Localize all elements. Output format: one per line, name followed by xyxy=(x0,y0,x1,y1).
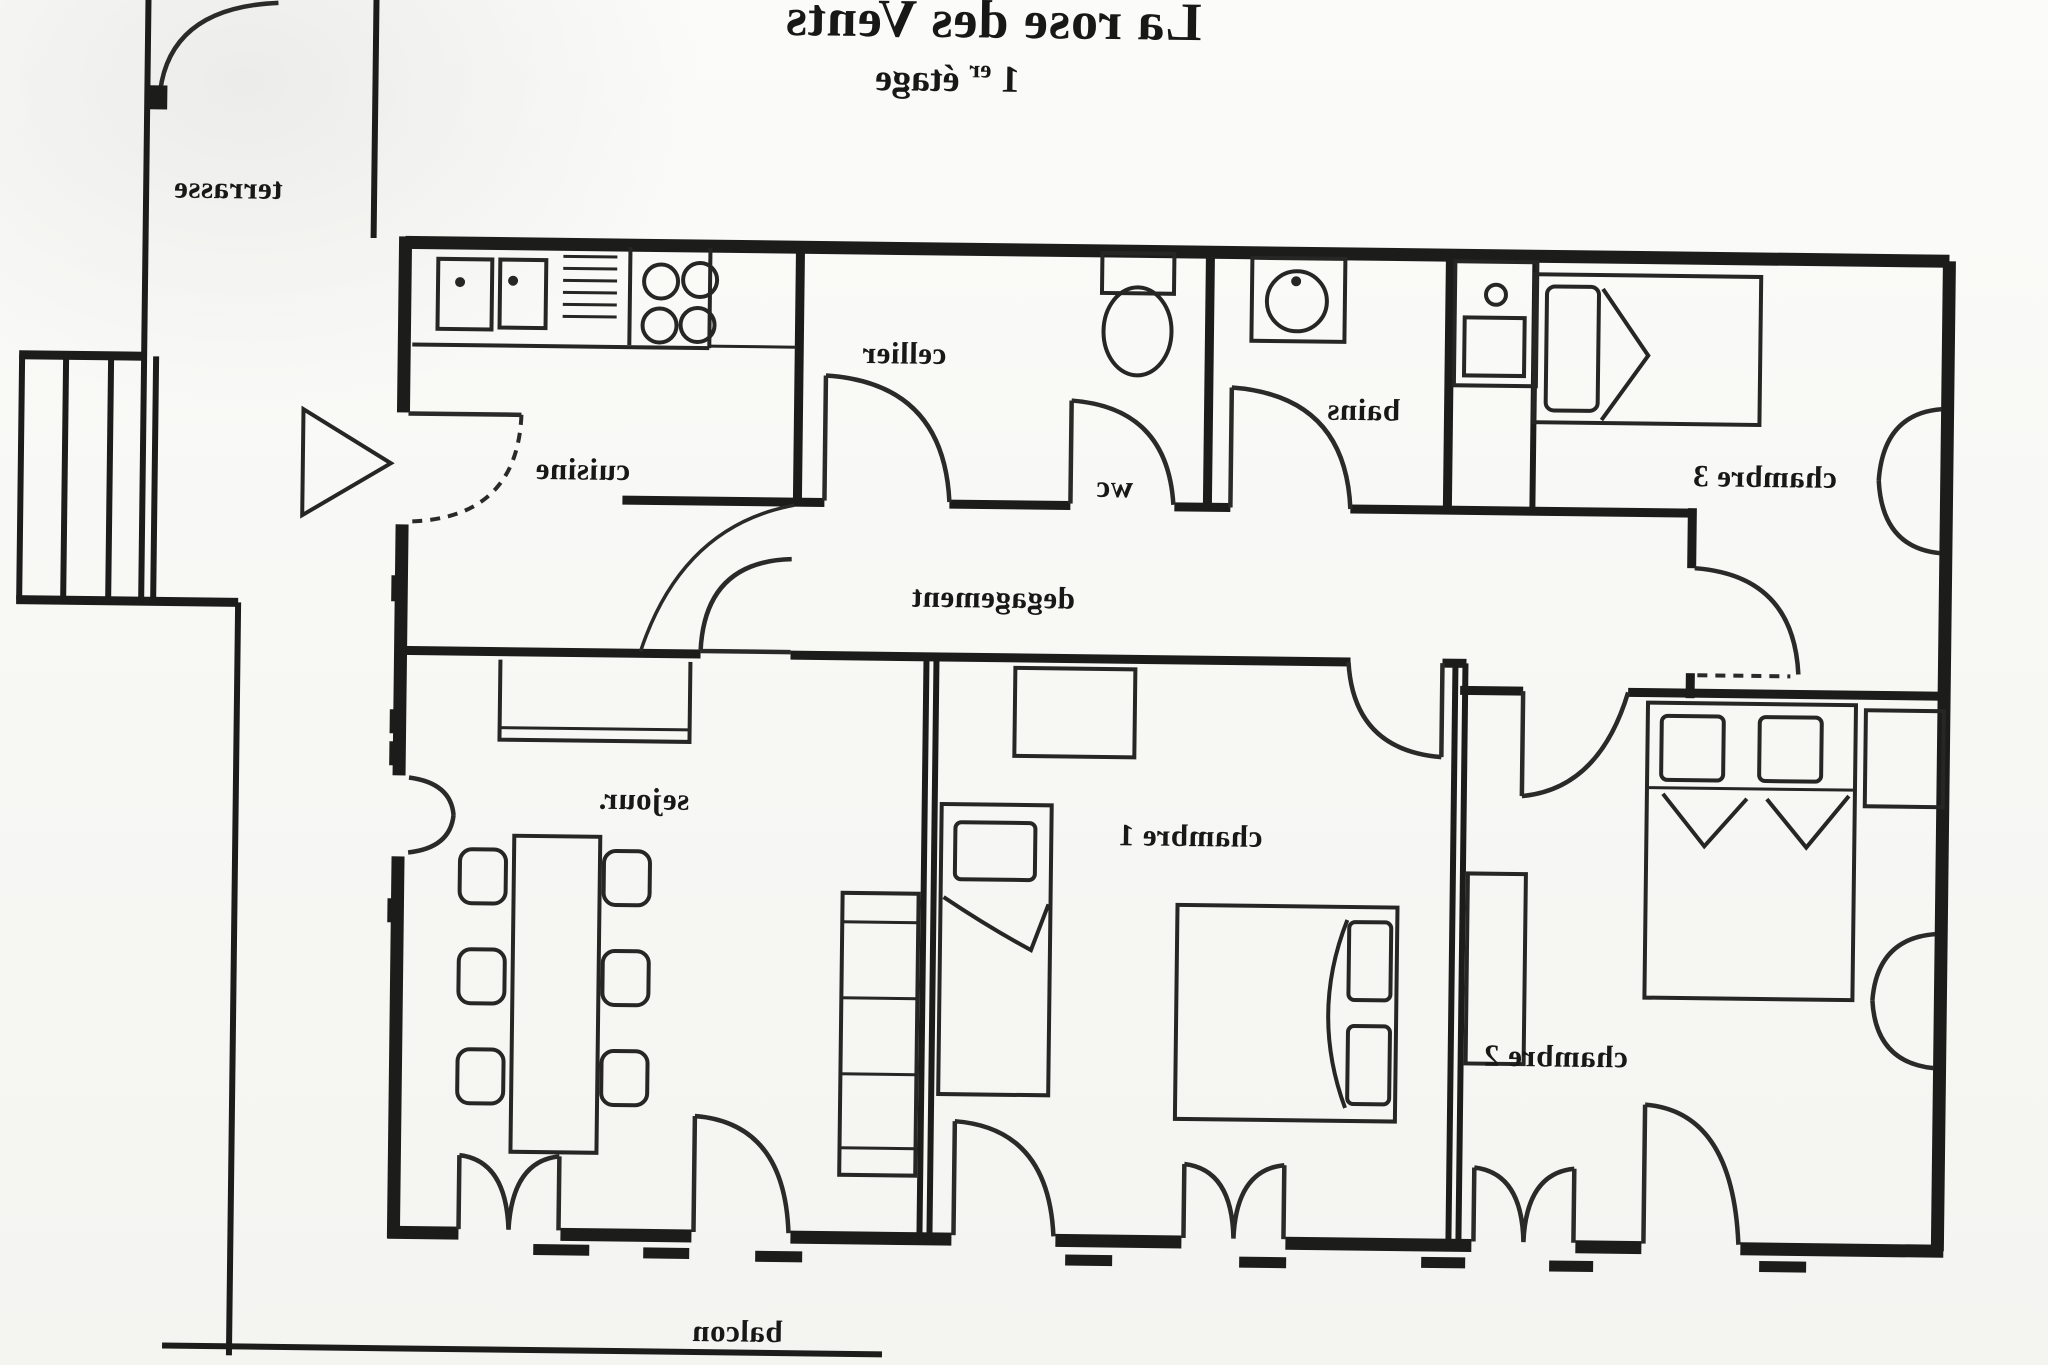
sheet-fold-double-bed xyxy=(1327,920,1347,1108)
bed-line-chambre2 xyxy=(1649,788,1853,790)
chair xyxy=(457,1049,504,1104)
door-chambre1 xyxy=(1347,662,1442,757)
subtitle-superscript: er xyxy=(969,56,992,83)
tick xyxy=(390,709,402,733)
wall-chambre3-step xyxy=(1690,508,1692,698)
bed-chambre3 xyxy=(1533,274,1761,425)
pillow-chambre2 xyxy=(1661,716,1724,781)
wall-sejour-chambre1 xyxy=(919,657,936,1239)
threshold-tick xyxy=(1759,1261,1806,1273)
sheet-fold-single-bed xyxy=(943,897,1049,950)
window-chambre2-right xyxy=(1872,933,1936,1068)
washbasin-tap xyxy=(1291,276,1301,286)
label-chambre2: chambre 2 xyxy=(1483,1038,1628,1075)
pillow-chambre3 xyxy=(1546,286,1600,411)
hob-burner xyxy=(683,263,717,297)
sofa-cushion-lines xyxy=(840,922,919,1149)
chair xyxy=(603,851,650,906)
label-balcon: balcon xyxy=(692,1313,783,1349)
dining-table xyxy=(510,836,600,1153)
furniture xyxy=(294,243,1949,1188)
chair xyxy=(458,949,505,1004)
labels: La rose des Vents 1 er étage terrasse cu… xyxy=(160,0,1843,1362)
pillow-chambre2 xyxy=(1759,717,1822,782)
label-wc: wc xyxy=(1096,469,1134,504)
sheet-fold-chambre3 xyxy=(1601,289,1649,421)
window-sejour-left xyxy=(408,777,454,853)
door-terrasse-arc xyxy=(159,1,278,102)
wall-cuisine-cellier xyxy=(797,247,800,502)
threshold-tick xyxy=(533,1244,589,1256)
page-subtitle: 1 er étage xyxy=(875,43,1020,101)
sheet-fold-chambre2 xyxy=(1662,794,1849,848)
double-bed-chambre2 xyxy=(1644,703,1856,1001)
doors-and-windows xyxy=(146,1,1947,1247)
label-bains: bains xyxy=(1327,392,1401,428)
walls xyxy=(7,0,1959,1365)
faucet-dot xyxy=(508,276,518,286)
label-chambre1: chambre 1 xyxy=(1118,817,1263,854)
wall-terrasse-left xyxy=(141,0,148,601)
stairs-frame xyxy=(16,355,241,603)
door-chambre3 xyxy=(1693,568,1799,674)
opening-cuisine-arch xyxy=(641,503,795,653)
door-cellier xyxy=(824,376,951,503)
washing-machine-drum xyxy=(1464,317,1525,376)
kitchen-drainer xyxy=(563,256,618,317)
tick xyxy=(391,575,403,601)
label-terrasse: terrasse xyxy=(173,170,282,206)
tick xyxy=(389,741,401,765)
tick xyxy=(1936,869,1948,895)
tick xyxy=(149,85,167,109)
tick xyxy=(1939,601,1951,627)
threshold-tick xyxy=(1549,1260,1593,1272)
buffet-shelf-line xyxy=(500,728,690,730)
door-chambre1-balcon xyxy=(953,1121,1054,1236)
window-chambre1 xyxy=(1183,1164,1284,1239)
window-chambre3-right xyxy=(1878,408,1942,553)
wall-terrasse-right xyxy=(374,0,377,238)
door-sejour-balcon xyxy=(693,1116,789,1233)
kitchen-sink-right xyxy=(500,260,547,329)
label-sejour: sejour. xyxy=(598,781,689,817)
sofa xyxy=(839,893,918,1176)
kitchen-counter-ext xyxy=(709,346,796,347)
hob-burner xyxy=(642,308,676,342)
door-entrance-leaf xyxy=(408,413,521,414)
toilet-bowl xyxy=(1103,287,1172,376)
wall-chambre2-north xyxy=(1460,690,1944,696)
label-cuisine: cuisine xyxy=(535,451,630,487)
wall-chambre1-chambre2 xyxy=(1448,663,1465,1245)
window-chambre2 xyxy=(1473,1168,1574,1243)
label-cellier: cellier xyxy=(862,335,947,371)
page-title: La rose des Vents xyxy=(785,0,1202,52)
label-chambre3: chambre 3 xyxy=(1692,458,1837,495)
pillow-single-bed xyxy=(955,822,1036,880)
subtitle-number: 1 xyxy=(1001,59,1021,101)
washing-machine-knob xyxy=(1486,285,1506,305)
wall-exterior-lower xyxy=(229,602,238,1355)
door-chambre2 xyxy=(1522,691,1628,797)
chair xyxy=(602,951,649,1006)
subtitle-rest: étage xyxy=(875,57,960,100)
tick xyxy=(1939,569,1951,595)
threshold-tick xyxy=(643,1247,689,1259)
closet-chambre2-wall xyxy=(1466,873,1526,1064)
label-degagement: degagement xyxy=(911,579,1075,616)
chair xyxy=(601,1051,648,1106)
window-sejour xyxy=(458,1155,559,1230)
wall-bains-chambre3 xyxy=(1447,255,1450,510)
dresser-chambre2 xyxy=(1865,710,1944,807)
tick xyxy=(387,898,399,922)
double-bed-chambre1 xyxy=(1175,905,1398,1122)
stairs-steps xyxy=(19,355,156,602)
door-chambre3-threshold xyxy=(1697,675,1790,676)
threshold-tick xyxy=(755,1251,802,1263)
wall-bottom xyxy=(387,1232,1943,1251)
chair xyxy=(459,849,506,904)
door-sejour xyxy=(701,558,792,652)
faucet-dot xyxy=(455,277,465,287)
wall-left xyxy=(393,236,405,1238)
wall-top xyxy=(406,242,1950,261)
direction-arrow xyxy=(302,409,391,516)
pillow-double-bed xyxy=(1347,1026,1390,1105)
floorplan-svg: La rose des Vents 1 er étage terrasse cu… xyxy=(0,0,2048,1365)
kitchen-hob-divider xyxy=(629,247,630,345)
threshold-tick xyxy=(1421,1257,1465,1269)
door-chambre2-balcon xyxy=(1643,1105,1740,1245)
tick xyxy=(1935,901,1947,927)
wardrobe-chambre1 xyxy=(1014,668,1135,757)
threshold-tick xyxy=(1239,1257,1286,1269)
floorplan-scan: La rose des Vents 1 er étage terrasse cu… xyxy=(0,0,2048,1365)
wall-wc-bains xyxy=(1207,252,1210,507)
door-entrance-arc xyxy=(409,413,521,522)
kitchen-sink-left xyxy=(437,259,492,330)
hob-burner xyxy=(644,264,678,298)
threshold-tick xyxy=(1065,1255,1112,1267)
pillow-double-bed xyxy=(1348,922,1391,1001)
